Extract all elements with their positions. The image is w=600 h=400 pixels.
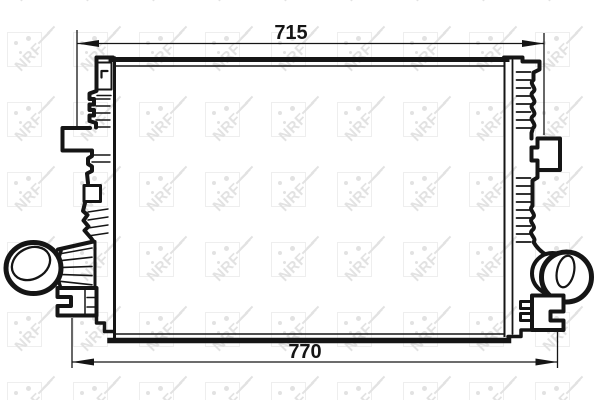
- right-lower-bracket: [532, 296, 564, 331]
- dim-bottom-arrow-left: [72, 359, 94, 366]
- left-upper-bracket: [63, 128, 93, 183]
- fin-line: [59, 274, 92, 275]
- right-mid-contour: [531, 170, 547, 256]
- left-bottom-staircase: [97, 316, 114, 332]
- left-small-box: [84, 186, 101, 202]
- left-lower-bracket: [58, 288, 97, 316]
- fin-line: [88, 225, 108, 228]
- right-tank: [504, 58, 592, 337]
- dimension-top-label: 715: [274, 22, 307, 44]
- dim-top-arrow-left: [77, 40, 99, 47]
- dim-bottom-arrow-right: [536, 359, 558, 366]
- dim-top-arrow-right: [522, 40, 544, 47]
- right-tank-upper-contour: [504, 58, 540, 139]
- left-tank-clip-box: [98, 63, 112, 90]
- radiator-core: [110, 58, 509, 341]
- left-hose-spout-rim: [6, 243, 61, 294]
- fin-line: [88, 217, 108, 220]
- dimension-bottom-label: 770: [288, 341, 321, 363]
- right-tank-fin-lines: [517, 72, 531, 242]
- intercooler-technical-drawing: NRFNRFNRFNRFNRFNRFNRFNRFNRFNRFNRFNRFNRFN…: [0, 0, 600, 400]
- radiator-outline-drawing: 715 770: [0, 0, 600, 400]
- fin-line: [59, 281, 92, 285]
- left-tank: [6, 58, 114, 332]
- dimension-annotations: 715 770: [72, 22, 558, 368]
- fin-line: [88, 209, 108, 212]
- right-upper-bracket: [532, 139, 561, 171]
- fin-line: [59, 257, 92, 261]
- fin-line: [59, 266, 92, 267]
